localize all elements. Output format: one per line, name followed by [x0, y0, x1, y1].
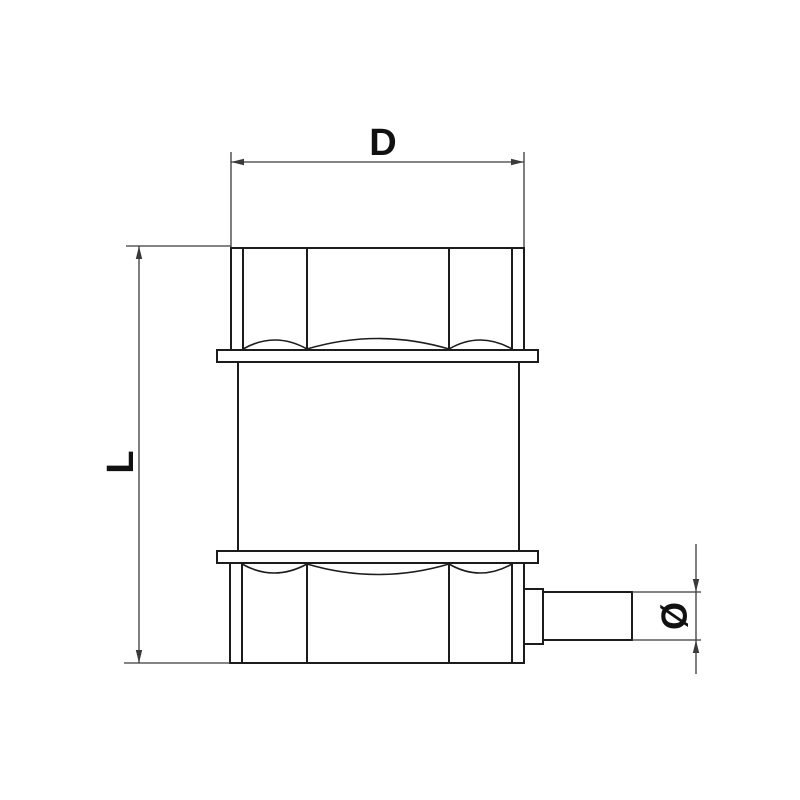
- diameter-symbol-label: Ø: [654, 602, 695, 630]
- arrowhead-down-icon: [693, 579, 699, 592]
- bottom-cap-outline: [230, 563, 524, 663]
- d-dimension-label: D: [369, 122, 396, 164]
- dimension-arrowheads: [136, 159, 699, 663]
- bottom-cap-chamfer-arc: [242, 564, 307, 573]
- bottom-cap-chamfer-arc: [449, 564, 512, 573]
- upper-flange: [217, 350, 538, 362]
- arrowhead-up-icon: [693, 640, 699, 653]
- top-cap-chamfer-arc: [449, 340, 512, 349]
- l-dimension-label: L: [100, 450, 142, 473]
- arrowhead-down-icon: [136, 650, 142, 663]
- arrowhead-up-icon: [136, 246, 142, 259]
- top-cap-chamfer-arc: [243, 340, 307, 349]
- cylinder-technical-drawing: D L Ø: [0, 0, 800, 800]
- arrowhead-left-icon: [231, 159, 244, 165]
- dimension-lines: [124, 152, 701, 674]
- bottom-cap-chamfer-arc: [307, 564, 449, 575]
- arrowhead-right-icon: [511, 159, 524, 165]
- cylinder-body: [238, 362, 519, 551]
- object-outlines: [217, 248, 632, 663]
- lower-flange: [217, 551, 538, 563]
- top-cap-chamfer-arc: [307, 339, 449, 350]
- connector-collar: [524, 589, 543, 644]
- dimension-labels: D L Ø: [100, 122, 695, 630]
- top-cap-outline: [231, 248, 524, 350]
- technical-drawing-canvas: D L Ø: [0, 0, 800, 800]
- connector-pin: [543, 592, 632, 640]
